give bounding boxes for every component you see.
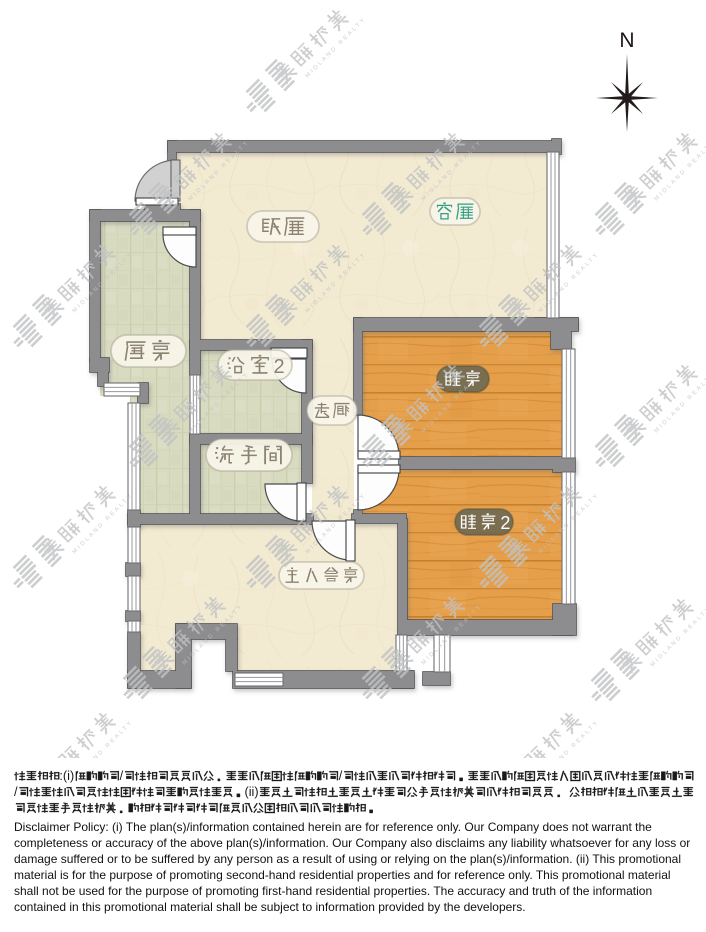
svg-text:N: N bbox=[619, 29, 634, 52]
svg-text:damage suffered or to be suffe: damage suffered or to be suffered by any… bbox=[14, 852, 681, 866]
svg-text:Disclaimer Policy: (i) The pla: Disclaimer Policy: (i) The plan(s)/infor… bbox=[14, 820, 652, 834]
svg-text:2: 2 bbox=[500, 513, 510, 533]
svg-text:/: / bbox=[339, 769, 343, 783]
svg-text:/: / bbox=[120, 769, 124, 783]
svg-text:completeness or accuracy of th: completeness or accuracy of the above pl… bbox=[14, 836, 690, 850]
svg-text:/: / bbox=[14, 785, 18, 799]
svg-text::(i): :(i) bbox=[59, 769, 74, 783]
svg-text:shall not be used for the purp: shall not be used for the purpose of pro… bbox=[14, 884, 652, 898]
svg-text:2: 2 bbox=[274, 356, 285, 378]
svg-text:(ii): (ii) bbox=[245, 785, 259, 799]
svg-text:material is for the purpose of: material is for the purpose of promoting… bbox=[14, 868, 671, 882]
svg-text:contained in this promotional: contained in this promotional material s… bbox=[14, 900, 526, 914]
